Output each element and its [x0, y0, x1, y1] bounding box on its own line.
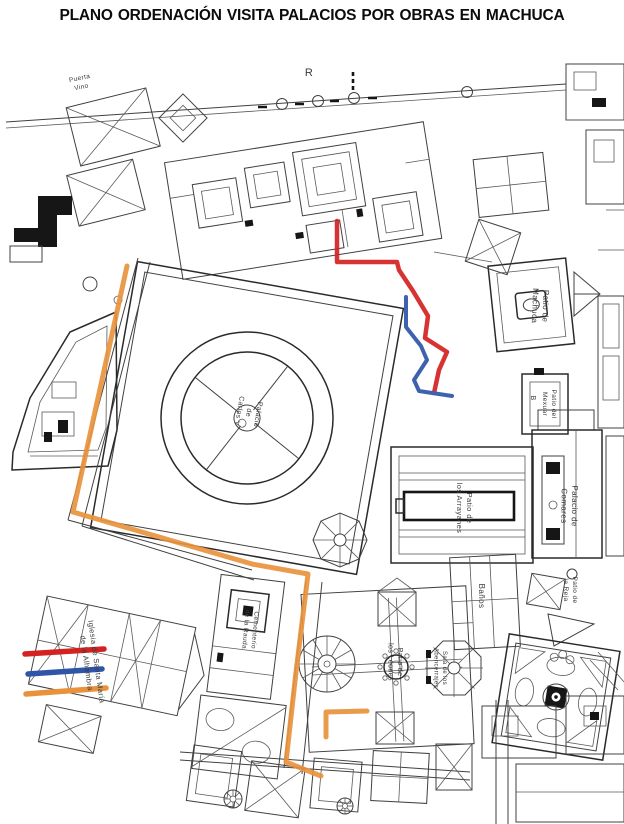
lion-fountain — [378, 649, 414, 685]
map-label-letra-r: R — [305, 67, 313, 79]
page-title: PLANO ORDENACIÓN VISITA PALACIOS POR OBR… — [0, 7, 624, 25]
map-label-patio-del-mexuar: Patio delMexuar — [541, 390, 557, 419]
svg-text:Patio delos Arrayanes: Patio delos Arrayanes — [455, 483, 474, 534]
map-label-patio-de-los-arrayanes: Patio delos Arrayanes — [455, 483, 474, 534]
svg-text:PalaciodeCarlos V: PalaciodeCarlos V — [233, 396, 264, 430]
route-itinerario-azul — [406, 297, 452, 396]
map-label-letra-b: B — [529, 395, 536, 400]
map-plano: PalaciodeCarlos VRPuertaVinoPatio deMach… — [0, 40, 624, 824]
svg-text:Patio delMexuar: Patio delMexuar — [541, 390, 557, 419]
route-itinerario-naranja — [73, 266, 321, 776]
north-pavilion — [378, 578, 416, 626]
map-label-palacio-de-comares: Palacio deComares — [559, 485, 579, 527]
svg-text:Patio dela Reja: Patio dela Reja — [562, 576, 578, 603]
iglesia-building — [28, 596, 213, 719]
map-label-patio-de-machuca: Patio deMachuca — [530, 288, 551, 324]
map-label-patio-de-la-reja: Patio dela Reja — [562, 576, 578, 603]
svg-text:Iglesia de Santa Maríade la Al: Iglesia de Santa Maríade la Alhambra — [76, 620, 107, 706]
map-label-palacio-carlos-v: PalaciodeCarlos V — [233, 396, 264, 430]
map-label-iglesia-santa-maria: Iglesia de Santa Maríade la Alhambra — [76, 620, 107, 706]
map-label-banos: Baños — [477, 584, 486, 609]
courtyard-complex — [165, 122, 442, 280]
bottom-buildings — [186, 696, 624, 822]
background-linework — [6, 64, 624, 824]
plano-page: PLANO ORDENACIÓN VISITA PALACIOS POR OBR… — [0, 0, 624, 824]
buildings-above-machuca — [473, 152, 549, 217]
right-edge-buildings — [566, 64, 624, 556]
tower — [159, 94, 207, 142]
svg-text:PuertaVino: PuertaVino — [68, 73, 92, 93]
svg-text:B: B — [529, 395, 536, 400]
map-canvas: PalaciodeCarlos VRPuertaVinoPatio deMach… — [0, 40, 624, 824]
route-itinerario-naranja-tramo — [326, 711, 367, 737]
map-labels-layer: PalaciodeCarlos VRPuertaVinoPatio deMach… — [68, 67, 579, 706]
iglesia-annex — [38, 705, 101, 754]
svg-text:Baños: Baños — [477, 584, 486, 609]
svg-text:Patio deMachuca: Patio deMachuca — [530, 288, 551, 324]
reja-patio — [526, 569, 594, 646]
rosette-dome — [299, 636, 355, 692]
south-pavilion — [376, 712, 414, 744]
svg-text:Palacio deComares: Palacio deComares — [559, 485, 579, 527]
svg-text:R: R — [305, 67, 313, 79]
octagonal-crypt — [313, 513, 367, 567]
map-label-puerta-vino: PuertaVino — [68, 73, 92, 93]
comares-palace — [532, 410, 602, 558]
